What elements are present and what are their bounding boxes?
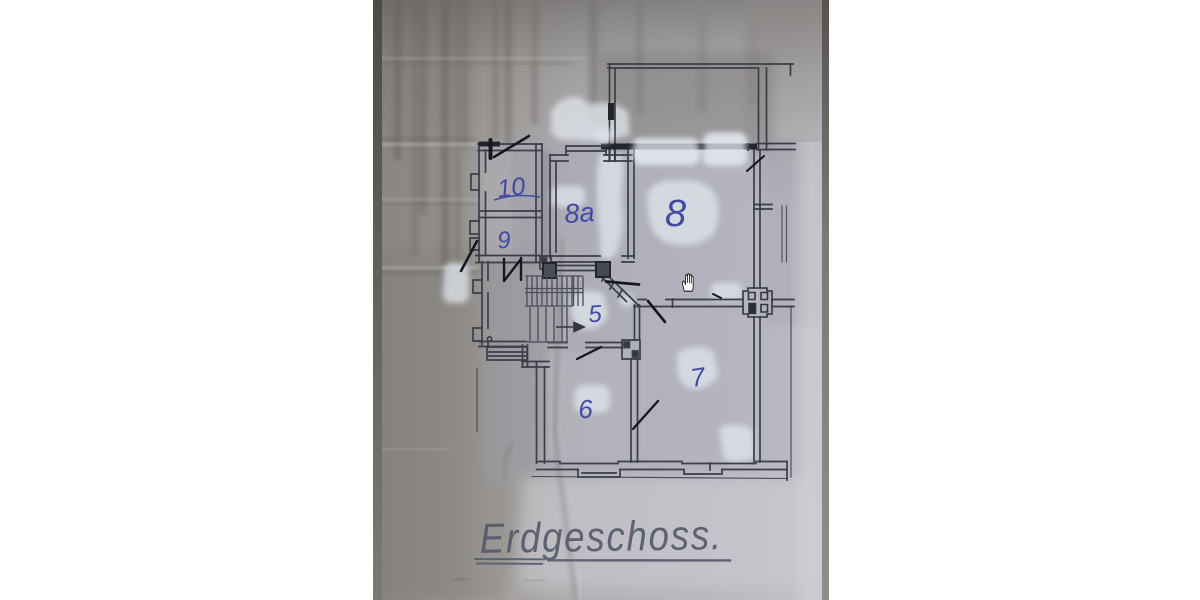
svg-text:8: 8 xyxy=(665,193,686,235)
svg-text:9: 9 xyxy=(496,226,512,254)
svg-text:6: 6 xyxy=(577,393,594,424)
svg-text:5: 5 xyxy=(587,300,603,328)
svg-text:Erdgeschoss.: Erdgeschoss. xyxy=(479,511,723,562)
svg-text:8a: 8a xyxy=(563,197,595,229)
